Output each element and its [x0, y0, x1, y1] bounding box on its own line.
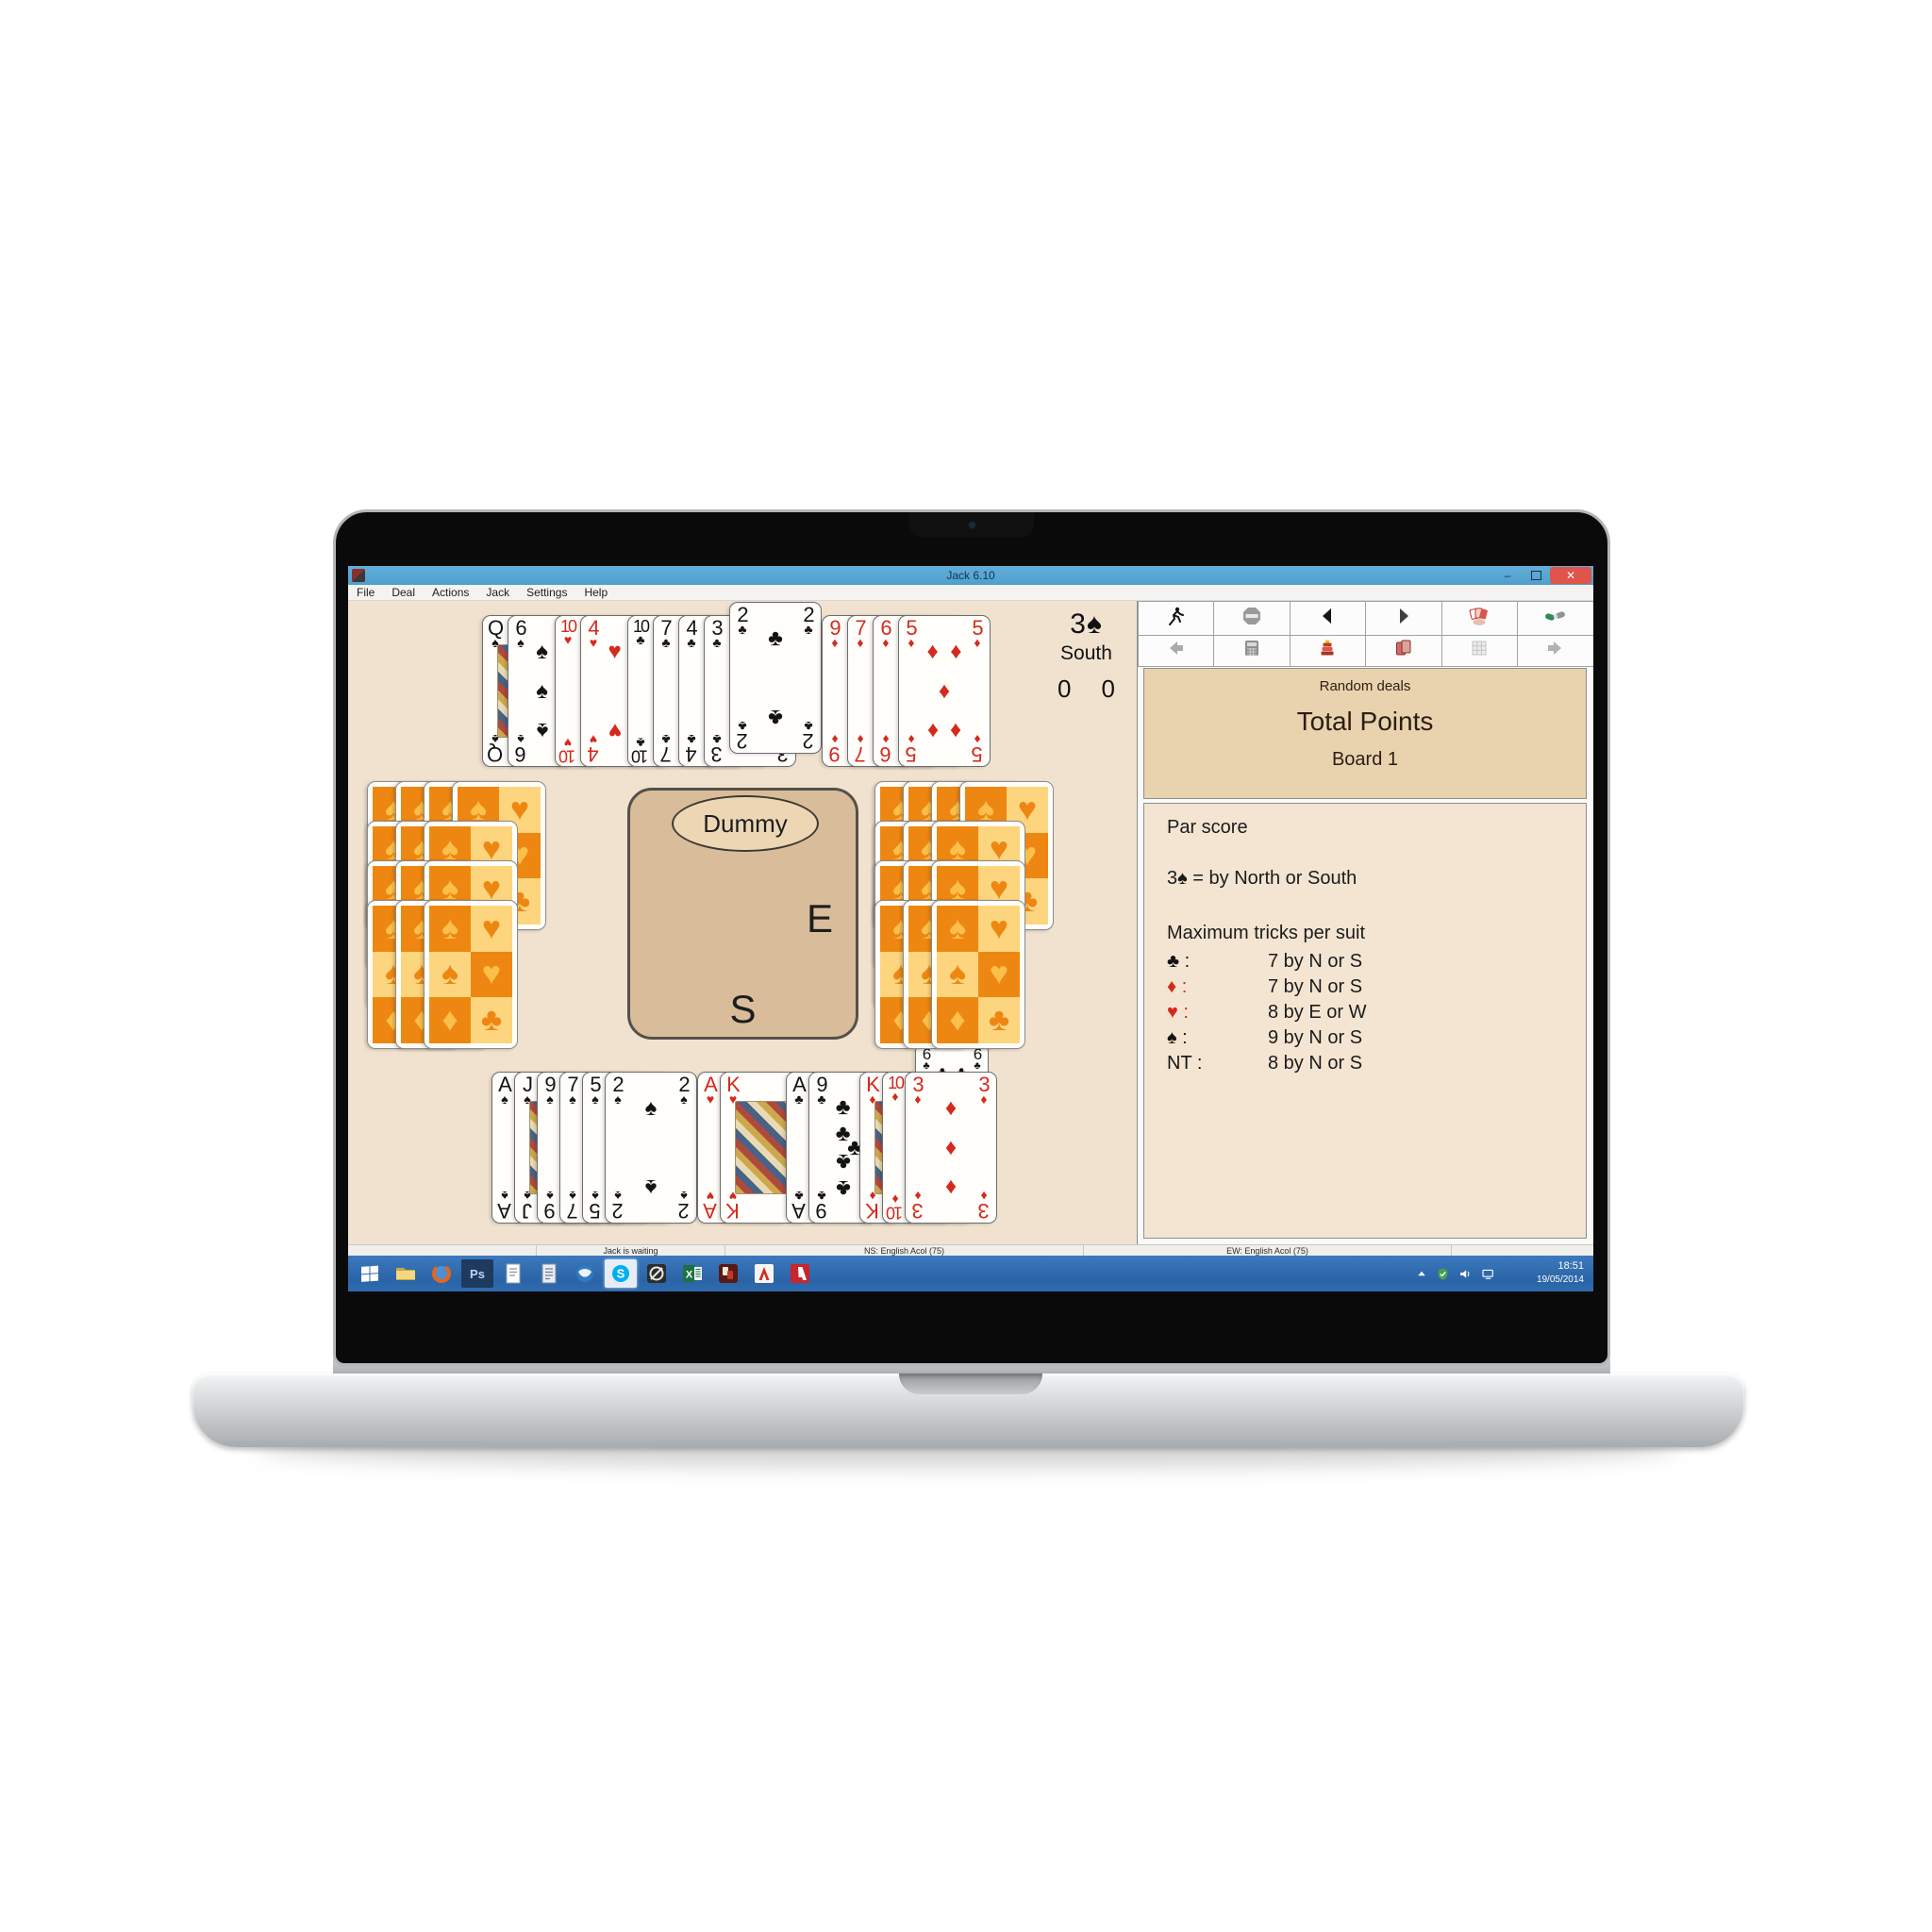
max-tricks-row: NT :8 by N or S [1167, 1051, 1576, 1076]
taskbar-clock[interactable]: 18:51 19/05/2014 [1501, 1259, 1584, 1286]
card-corner: 5♦ [968, 619, 987, 649]
right-panel: Random deals Total Points Board 1 Par sc… [1137, 601, 1593, 1244]
taskbar-notepad-icon[interactable] [497, 1259, 529, 1288]
card-3D[interactable]: 3♦3♦3♦3♦♦♦♦ [905, 1072, 997, 1224]
triangle-left-icon [1317, 606, 1338, 631]
restore-icon [1531, 571, 1541, 580]
card-5D[interactable]: 5♦5♦5♦5♦♦♦♦♦♦ [898, 615, 991, 767]
east-seat-label: E [807, 896, 833, 941]
status-segment-empty [1452, 1245, 1593, 1256]
par-score-box: Par score 3♠ = by North or South Maximum… [1143, 803, 1587, 1239]
card-corner: 2♣ [799, 720, 818, 750]
menu-bar: FileDealActionsJackSettingsHelp [348, 585, 1593, 601]
card-back: ♠♥♠♥♦♣ [931, 900, 1025, 1049]
south-seat-label: S [630, 987, 856, 1032]
card-corner: 2♠ [675, 1190, 693, 1220]
menu-item-help[interactable]: Help [575, 586, 616, 599]
board-label: Board 1 [1144, 749, 1586, 771]
arrow-right-icon [1545, 638, 1566, 663]
max-tricks-row: ♦ :7 by N or S [1167, 974, 1576, 1000]
menu-item-deal[interactable]: Deal [383, 586, 424, 599]
status-bar: Jack is waiting NS: English Acol (75) EW… [348, 1244, 1593, 1256]
toolbar-button-play[interactable] [1138, 601, 1215, 636]
triangle-right-icon [1393, 606, 1414, 631]
taskbar-photoshop-icon[interactable]: Ps [461, 1259, 493, 1288]
system-tray [1416, 1256, 1495, 1291]
card-corner: 3♦ [974, 1190, 993, 1220]
taskbar-skype-icon[interactable]: S [605, 1259, 637, 1288]
max-tricks-title: Maximum tricks per suit [1167, 923, 1365, 944]
card-corner: 2♣ [799, 606, 818, 636]
minimize-button[interactable]: – [1493, 567, 1522, 584]
taskbar-excel-icon[interactable]: X [676, 1259, 708, 1288]
runner-icon [1165, 606, 1186, 631]
toolbar-button-replay[interactable] [1365, 635, 1442, 667]
menu-item-settings[interactable]: Settings [518, 586, 575, 599]
contract-declarer: South [1037, 642, 1136, 665]
toolbar-button-step-forward[interactable] [1365, 601, 1442, 636]
taskbar-acrobat-icon[interactable] [748, 1259, 780, 1288]
svg-text:X: X [686, 1270, 693, 1281]
close-button[interactable]: ✕ [1550, 567, 1591, 584]
jack-app-window: Jack 6.10 – ✕ FileDealActionsJackSetting… [348, 566, 1593, 1291]
taskbar-game-icon[interactable] [641, 1259, 673, 1288]
card-pips: ♦♦♦♦♦ [918, 639, 971, 743]
toolbar-button-previous[interactable] [1138, 635, 1215, 667]
contract-label: 3♠ [1037, 608, 1136, 641]
menu-item-jack[interactable]: Jack [477, 586, 518, 599]
max-tricks-row: ♠ :9 by N or S [1167, 1025, 1576, 1051]
center-table: Dummy 6♣6♣6♣6♣♣♣♣♣♣♣ E S [627, 788, 858, 1040]
windows-taskbar: PsSX 18:51 19/05/2014 [348, 1256, 1593, 1291]
max-tricks-row: ♣ :7 by N or S [1167, 949, 1576, 974]
toolbar-button-score[interactable] [1213, 635, 1291, 667]
card-pips: ♠♠ [625, 1095, 677, 1200]
card-2C[interactable]: 2♣2♣2♣2♣♣♣ [729, 602, 822, 754]
start-button[interactable] [354, 1259, 386, 1288]
handshake-icon [1544, 606, 1567, 631]
card-2S[interactable]: 2♠2♠2♠2♠♠♠ [605, 1072, 697, 1224]
stop-icon [1241, 606, 1262, 631]
toolbar-button-grid[interactable] [1441, 635, 1519, 667]
par-score-title: Par score [1167, 817, 1248, 839]
par-contract-line: 3♠ = by North or South [1167, 868, 1357, 890]
status-ns-system: NS: English Acol (75) [725, 1245, 1084, 1256]
laptop-thumb-scoop [899, 1374, 1042, 1394]
toolbar-button-bidding[interactable] [1290, 635, 1367, 667]
card-pips: ♦♦♦ [924, 1095, 977, 1200]
status-ew-system: EW: English Acol (75) [1084, 1245, 1452, 1256]
status-message: Jack is waiting [537, 1245, 725, 1256]
calculator-icon [1241, 638, 1262, 663]
laptop-mockup: Jack 6.10 – ✕ FileDealActionsJackSetting… [0, 0, 1932, 1932]
toolbar-button-claim[interactable] [1517, 601, 1593, 636]
laptop-base [192, 1374, 1744, 1447]
taskbar-wordpad-icon[interactable] [533, 1259, 565, 1288]
antivirus-icon[interactable] [1436, 1267, 1450, 1281]
play-area: Q♠Q♠Q♠Q♠6♠6♠6♠6♠♠♠♠♠♠♠10♥10♥10♥10♥♥♥♥♥♥♥… [348, 601, 1137, 1244]
taskbar-thunderbird-icon[interactable] [569, 1259, 601, 1288]
max-tricks-row: ♥ :8 by E or W [1167, 1000, 1576, 1025]
toolbar-button-stop[interactable] [1213, 601, 1291, 636]
cards-icon [1393, 638, 1414, 663]
deal-mode-label: Random deals [1144, 678, 1586, 694]
bid-stack-icon [1317, 638, 1338, 663]
volume-icon[interactable] [1458, 1267, 1473, 1281]
deal-info-box: Random deals Total Points Board 1 [1143, 668, 1587, 799]
contract-indicator: 3♠ South 0 0 [1037, 608, 1136, 704]
max-tricks-table: ♣ :7 by N or S♦ :7 by N or S♥ :8 by E or… [1167, 949, 1576, 1076]
clock-time: 18:51 [1501, 1259, 1584, 1274]
clock-date: 19/05/2014 [1501, 1274, 1584, 1287]
taskbar-firefox-icon[interactable] [425, 1259, 458, 1288]
tray-expand-icon[interactable] [1416, 1268, 1427, 1279]
network-icon[interactable] [1481, 1267, 1495, 1281]
camera-notch [909, 512, 1034, 537]
hand-cards-icon [1468, 606, 1491, 631]
svg-text:S: S [617, 1267, 625, 1281]
scoring-title: Total Points [1144, 707, 1586, 737]
card-corner: 5♦ [968, 733, 987, 763]
card-pips: ♣♣ [749, 625, 802, 730]
tricks-ew: 0 [1102, 675, 1115, 704]
tricks-ns: 0 [1058, 675, 1071, 704]
toolbar-button-step-back[interactable] [1290, 601, 1367, 636]
laptop-screen-bezel: Jack 6.10 – ✕ FileDealActionsJackSetting… [333, 509, 1610, 1366]
taskbar-adobe-icon[interactable] [784, 1259, 816, 1288]
dummy-label: Dummy [672, 795, 819, 852]
toolbar [1138, 601, 1593, 666]
card-back: ♠♥♠♥♦♣ [424, 900, 518, 1049]
card-corner: 2♠ [675, 1075, 693, 1106]
card-corner: 3♦ [974, 1075, 993, 1106]
menu-item-file[interactable]: File [348, 586, 383, 599]
toolbar-button-next[interactable] [1517, 635, 1593, 667]
toolbar-button-show-hand[interactable] [1441, 601, 1519, 636]
restore-button[interactable] [1522, 567, 1550, 584]
window-titlebar: Jack 6.10 – ✕ [348, 566, 1593, 585]
taskbar-explorer-icon[interactable] [390, 1259, 422, 1288]
camera-dot [968, 521, 976, 529]
arrow-left-icon [1165, 638, 1186, 663]
grid-icon [1469, 638, 1490, 663]
menu-item-actions[interactable]: Actions [424, 586, 477, 599]
window-title: Jack 6.10 [348, 569, 1593, 582]
taskbar-jack-app-icon[interactable] [712, 1259, 744, 1288]
status-segment-empty [348, 1245, 537, 1256]
